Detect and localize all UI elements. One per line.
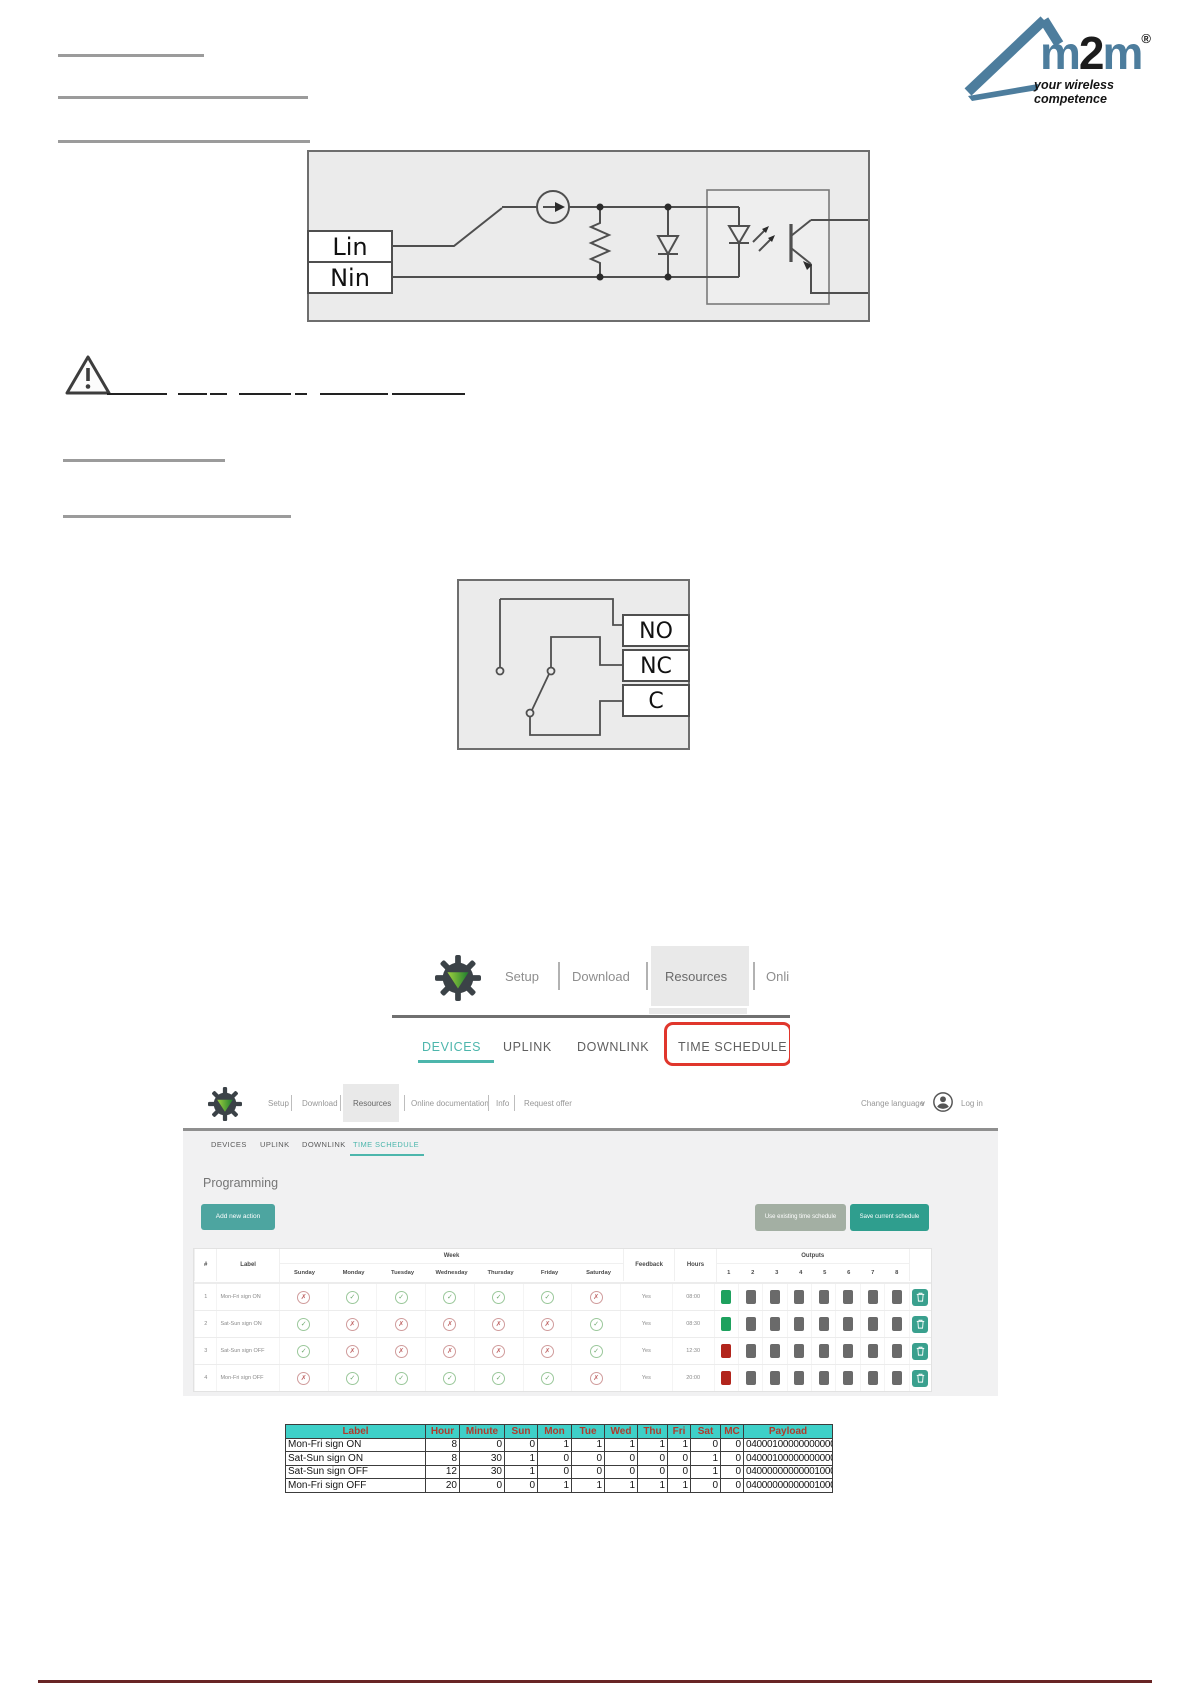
use-existing-schedule-button[interactable]: Use existing time schedule <box>755 1204 846 1231</box>
footer-rule <box>38 1680 1152 1683</box>
day-toggle-icon[interactable]: ✓ <box>297 1345 310 1358</box>
tab-uplink[interactable]: UPLINK <box>503 1040 552 1054</box>
output-toggle[interactable] <box>721 1371 731 1385</box>
action-label: Mon-Fri sign ON <box>216 1284 278 1310</box>
col-sun: Sun <box>505 1425 538 1439</box>
menu-separator <box>404 1095 405 1111</box>
col-hour: Hour <box>426 1425 460 1439</box>
col-week: Week <box>280 1249 623 1264</box>
delete-row-button[interactable] <box>912 1370 928 1387</box>
menu-item-resources[interactable]: Resources <box>353 1099 391 1108</box>
day-toggle-icon[interactable]: ✗ <box>541 1318 554 1331</box>
day-toggle-icon[interactable]: ✗ <box>492 1345 505 1358</box>
gear-logo-icon <box>208 1086 242 1122</box>
output-toggle[interactable] <box>721 1344 731 1358</box>
tab-downlink[interactable]: DOWNLINK <box>302 1140 346 1149</box>
col-fri: Fri <box>668 1425 691 1439</box>
nin-terminal-label: Nin <box>330 264 370 292</box>
output-toggle[interactable] <box>794 1290 804 1304</box>
hours-value: 12:30 <box>672 1338 714 1364</box>
col-label: Label <box>216 1249 279 1281</box>
gear-logo-icon <box>435 954 481 1002</box>
menu-item-download[interactable]: Download <box>572 969 630 984</box>
log-in-button[interactable]: Log in <box>961 1099 983 1108</box>
schedule-header-row: Label Hour Minute Sun Mon Tue Wed Thu Fr… <box>286 1425 833 1439</box>
warning-icon <box>64 352 112 398</box>
day-toggle-icon[interactable]: ✓ <box>395 1372 408 1385</box>
table-header: # Label Week Sunday Monday Tuesday Wedne… <box>194 1249 931 1283</box>
menu-separator <box>753 962 755 990</box>
col-output-2: 2 <box>741 1270 765 1276</box>
day-toggle-icon[interactable]: ✓ <box>492 1291 505 1304</box>
toolbar-screenshot: Setup Download Resources Online d <box>372 942 790 1008</box>
day-toggle-icon[interactable]: ✗ <box>346 1318 359 1331</box>
table-row: 1 Mon-Fri sign ON ✗ ✓ ✓ ✓ ✓ ✓ ✗ Yes 08:0… <box>194 1283 931 1310</box>
tab-downlink[interactable]: DOWNLINK <box>577 1040 649 1054</box>
tab-devices[interactable]: DEVICES <box>211 1140 247 1149</box>
day-toggle-icon[interactable]: ✓ <box>443 1372 456 1385</box>
day-toggle-icon[interactable]: ✗ <box>492 1318 505 1331</box>
menu-item-resources[interactable]: Resources <box>665 969 727 984</box>
feedback-value: Yes <box>620 1284 672 1310</box>
day-toggle-icon[interactable]: ✗ <box>443 1318 456 1331</box>
table-row: 3 Sat-Sun sign OFF ✓ ✗ ✗ ✗ ✗ ✗ ✓ Yes 12:… <box>194 1337 931 1364</box>
col-output-4: 4 <box>789 1270 813 1276</box>
col-monday: Monday <box>329 1270 378 1276</box>
output-toggle[interactable] <box>721 1290 731 1304</box>
schedule-row: Sat-Sun sign OFF 12 30 1 0 0 0 0 0 1 0 0… <box>286 1465 833 1479</box>
output-toggle[interactable] <box>819 1344 829 1358</box>
day-toggle-icon[interactable]: ✗ <box>395 1318 408 1331</box>
registered-mark: ® <box>1141 31 1151 46</box>
output-toggle[interactable] <box>819 1317 829 1331</box>
schedule-data-table: Label Hour Minute Sun Mon Tue Wed Thu Fr… <box>285 1424 833 1493</box>
m2m-logo: m2m® your wireless competence <box>958 14 1178 106</box>
action-label: Mon-Fri sign OFF <box>216 1365 278 1391</box>
active-tab-underline <box>350 1154 424 1156</box>
col-output-1: 1 <box>717 1270 741 1276</box>
delete-row-button[interactable] <box>912 1316 928 1333</box>
col-num: # <box>194 1249 216 1281</box>
time-schedule-highlight-box <box>664 1022 790 1066</box>
day-toggle-icon[interactable]: ✓ <box>346 1291 359 1304</box>
c-terminal-label: C <box>648 689 663 714</box>
hours-value: 20:00 <box>672 1365 714 1391</box>
lin-terminal-label: Lin <box>332 233 367 261</box>
feedback-value: Yes <box>620 1338 672 1364</box>
tabs-screenshot: DEVICES UPLINK DOWNLINK TIME SCHEDULE <box>372 1008 790 1070</box>
col-minute: Minute <box>460 1425 505 1439</box>
no-terminal-label: NO <box>639 619 673 644</box>
output-toggle[interactable] <box>770 1317 780 1331</box>
output-toggle[interactable] <box>819 1371 829 1385</box>
col-feedback: Feedback <box>623 1249 674 1281</box>
delete-row-button[interactable] <box>912 1289 928 1306</box>
chevron-down-icon[interactable]: ∨ <box>920 1099 926 1108</box>
redacted-heading-line <box>58 96 308 99</box>
change-language-button[interactable]: Change language <box>861 1099 924 1108</box>
col-mon: Mon <box>538 1425 572 1439</box>
schedule-row: Mon-Fri sign OFF 20 0 0 1 1 1 1 1 0 0 04… <box>286 1479 833 1493</box>
page-title: Programming <box>203 1176 278 1190</box>
output-toggle[interactable] <box>892 1290 902 1304</box>
delete-row-button[interactable] <box>912 1343 928 1360</box>
table-row: 2 Sat-Sun sign ON ✓ ✗ ✗ ✗ ✗ ✗ ✓ Yes 08:3… <box>194 1310 931 1337</box>
output-toggle[interactable] <box>868 1371 878 1385</box>
save-current-schedule-button[interactable]: Save current schedule <box>850 1204 929 1231</box>
output-toggle[interactable] <box>746 1317 756 1331</box>
redacted-heading-line <box>58 54 204 57</box>
output-toggle[interactable] <box>868 1344 878 1358</box>
day-toggle-icon[interactable]: ✗ <box>297 1372 310 1385</box>
day-toggle-icon[interactable]: ✓ <box>492 1372 505 1385</box>
day-toggle-icon[interactable]: ✗ <box>590 1291 603 1304</box>
account-icon[interactable] <box>932 1091 954 1113</box>
day-toggle-icon[interactable]: ✗ <box>443 1345 456 1358</box>
menu-item-download[interactable]: Download <box>302 1099 338 1108</box>
output-toggle[interactable] <box>868 1290 878 1304</box>
redacted-heading-line <box>63 459 225 462</box>
action-label: Sat-Sun sign ON <box>216 1311 278 1337</box>
menu-separator <box>488 1095 489 1111</box>
feedback-value: Yes <box>620 1311 672 1337</box>
feedback-value: Yes <box>620 1365 672 1391</box>
col-sat: Sat <box>691 1425 721 1439</box>
output-toggle[interactable] <box>843 1371 853 1385</box>
day-toggle-icon[interactable]: ✓ <box>590 1318 603 1331</box>
col-output-3: 3 <box>765 1270 789 1276</box>
col-friday: Friday <box>525 1270 574 1276</box>
schedule-row: Sat-Sun sign ON 8 30 1 0 0 0 0 0 1 0 040… <box>286 1452 833 1466</box>
menu-item-online-documentation[interactable]: Online documentation <box>411 1099 489 1108</box>
menu-item-setup[interactable]: Setup <box>268 1099 289 1108</box>
col-tue: Tue <box>572 1425 605 1439</box>
tab-devices[interactable]: DEVICES <box>422 1040 481 1054</box>
menu-separator <box>514 1095 515 1111</box>
tab-uplink[interactable]: UPLINK <box>260 1140 290 1149</box>
header-divider <box>392 1015 790 1018</box>
programming-table: # Label Week Sunday Monday Tuesday Wedne… <box>193 1248 932 1392</box>
brand-wordmark: m2m® <box>1040 30 1151 76</box>
col-thursday: Thursday <box>476 1270 525 1276</box>
manual-page: m2m® your wireless competence <box>0 0 1191 1685</box>
col-thu: Thu <box>638 1425 668 1439</box>
col-wed: Wed <box>605 1425 638 1439</box>
col-output-6: 6 <box>837 1270 861 1276</box>
menu-item-online-doc[interactable]: Online d <box>766 969 790 984</box>
redacted-heading-line <box>63 515 291 518</box>
app-screenshot: Setup Download Resources Online document… <box>183 1078 998 1396</box>
action-label: Sat-Sun sign OFF <box>216 1338 278 1364</box>
output-toggle[interactable] <box>843 1317 853 1331</box>
active-tab-underline <box>418 1060 494 1063</box>
menu-separator <box>558 962 560 990</box>
output-toggle[interactable] <box>892 1317 902 1331</box>
hours-value: 08:00 <box>672 1284 714 1310</box>
col-wednesday: Wednesday <box>427 1270 476 1276</box>
brand-tagline: your wireless competence <box>1034 78 1178 106</box>
output-toggle[interactable] <box>746 1371 756 1385</box>
output-toggle[interactable] <box>843 1290 853 1304</box>
output-toggle[interactable] <box>794 1371 804 1385</box>
output-toggle[interactable] <box>892 1344 902 1358</box>
day-toggle-icon[interactable]: ✓ <box>541 1291 554 1304</box>
redacted-heading-line <box>58 140 310 143</box>
day-toggle-icon[interactable]: ✗ <box>590 1372 603 1385</box>
day-toggle-icon[interactable]: ✓ <box>590 1345 603 1358</box>
col-tuesday: Tuesday <box>378 1270 427 1276</box>
table-row: 4 Mon-Fri sign OFF ✗ ✓ ✓ ✓ ✓ ✓ ✗ Yes 20:… <box>194 1364 931 1391</box>
menu-separator <box>646 962 648 990</box>
highlight-remnant <box>649 1008 747 1014</box>
menu-item-info[interactable]: Info <box>496 1099 509 1108</box>
output-toggle[interactable] <box>794 1344 804 1358</box>
output-toggle[interactable] <box>868 1317 878 1331</box>
relay-circuit-diagram: NO NC C <box>457 579 690 750</box>
output-toggle[interactable] <box>746 1290 756 1304</box>
col-sunday: Sunday <box>280 1270 329 1276</box>
output-toggle[interactable] <box>770 1290 780 1304</box>
day-toggle-icon[interactable]: ✓ <box>541 1372 554 1385</box>
col-output-8: 8 <box>885 1270 909 1276</box>
hours-value: 08:30 <box>672 1311 714 1337</box>
add-new-action-button[interactable]: Add new action <box>201 1204 275 1230</box>
col-output-5: 5 <box>813 1270 837 1276</box>
day-toggle-icon[interactable]: ✗ <box>346 1345 359 1358</box>
col-output-7: 7 <box>861 1270 885 1276</box>
output-toggle[interactable] <box>770 1344 780 1358</box>
day-toggle-icon[interactable]: ✗ <box>297 1291 310 1304</box>
menu-item-request-offer[interactable]: Request offer <box>524 1099 572 1108</box>
output-toggle[interactable] <box>721 1317 731 1331</box>
tab-time-schedule[interactable]: TIME SCHEDULE <box>353 1140 419 1149</box>
schedule-row: Mon-Fri sign ON 8 0 0 1 1 1 1 1 0 0 0400… <box>286 1438 833 1452</box>
output-toggle[interactable] <box>843 1344 853 1358</box>
menu-separator <box>340 1095 341 1111</box>
col-payload: Payload <box>744 1425 833 1439</box>
input-circuit-diagram: Lin Nin <box>307 150 870 322</box>
header-divider <box>183 1128 998 1131</box>
day-toggle-icon[interactable]: ✓ <box>346 1372 359 1385</box>
day-toggle-icon[interactable]: ✓ <box>395 1291 408 1304</box>
col-outputs: Outputs <box>717 1249 909 1264</box>
col-hours: Hours <box>674 1249 716 1281</box>
output-toggle[interactable] <box>819 1290 829 1304</box>
col-label: Label <box>286 1425 426 1439</box>
output-toggle[interactable] <box>770 1371 780 1385</box>
col-saturday: Saturday <box>574 1270 623 1276</box>
output-toggle[interactable] <box>794 1317 804 1331</box>
day-toggle-icon[interactable]: ✓ <box>443 1291 456 1304</box>
menu-item-setup[interactable]: Setup <box>505 969 539 984</box>
col-mc: MC <box>721 1425 744 1439</box>
nc-terminal-label: NC <box>640 654 672 679</box>
day-toggle-icon[interactable]: ✗ <box>541 1345 554 1358</box>
day-toggle-icon[interactable]: ✗ <box>395 1345 408 1358</box>
output-toggle[interactable] <box>892 1371 902 1385</box>
menu-separator <box>291 1095 292 1111</box>
output-toggle[interactable] <box>746 1344 756 1358</box>
day-toggle-icon[interactable]: ✓ <box>297 1318 310 1331</box>
